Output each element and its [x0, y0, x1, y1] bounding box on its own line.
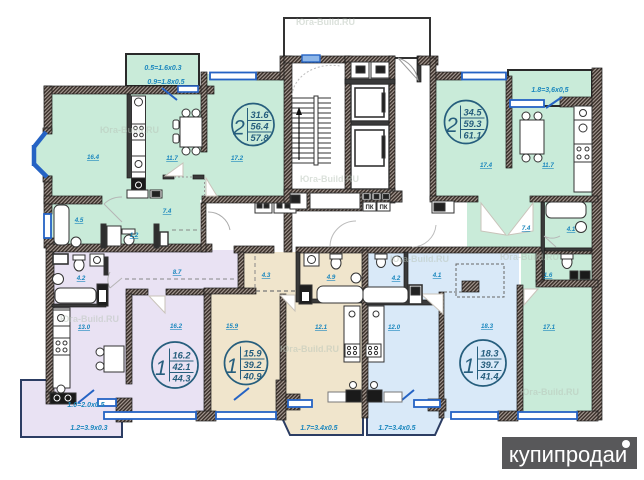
svg-text:Юга-Build.RU: Юга-Build.RU [100, 125, 159, 135]
svg-text:Юга-Build.RU: Юга-Build.RU [500, 252, 559, 262]
svg-text:44.3: 44.3 [171, 374, 191, 384]
svg-text:34.5: 34.5 [463, 108, 482, 118]
svg-text:Юга-Build.RU: Юга-Build.RU [390, 254, 449, 264]
svg-text:4.2: 4.2 [391, 275, 401, 282]
svg-text:40.9: 40.9 [242, 372, 262, 382]
svg-text:7.4: 7.4 [522, 225, 531, 232]
svg-text:купипродаи: купипродаи [509, 442, 627, 467]
svg-text:15.9: 15.9 [226, 323, 239, 330]
svg-text:57.8: 57.8 [250, 133, 269, 143]
svg-text:16.2: 16.2 [170, 323, 183, 330]
svg-text:59.3: 59.3 [463, 119, 482, 129]
svg-text:Юга-Build.RU: Юга-Build.RU [300, 174, 359, 184]
svg-text:15.9: 15.9 [243, 349, 262, 359]
svg-text:18.3: 18.3 [481, 323, 494, 330]
svg-text:42.1: 42.1 [171, 362, 190, 372]
svg-text:7.4: 7.4 [163, 208, 172, 215]
svg-text:18.3: 18.3 [480, 349, 499, 359]
svg-text:Юга-Build.RU: Юга-Build.RU [520, 387, 579, 397]
svg-text:11.7: 11.7 [166, 155, 178, 162]
svg-text:4.9: 4.9 [326, 274, 336, 281]
svg-text:0.9=1.8х0.5: 0.9=1.8х0.5 [147, 79, 184, 86]
svg-text:31.6: 31.6 [250, 110, 269, 120]
svg-text:11.7: 11.7 [542, 162, 554, 169]
svg-text:1.7=3.4х0.5: 1.7=3.4х0.5 [378, 425, 415, 432]
svg-text:1: 1 [226, 355, 238, 378]
svg-text:Юга-Build.RU: Юга-Build.RU [280, 344, 339, 354]
svg-text:56.4: 56.4 [250, 122, 269, 132]
svg-text:Юга-Build.RU: Юга-Build.RU [60, 314, 119, 324]
svg-text:1.0=2.0х0.5: 1.0=2.0х0.5 [67, 402, 104, 409]
svg-text:16.4: 16.4 [87, 154, 100, 161]
svg-text:4.1: 4.1 [566, 226, 576, 233]
svg-text:12.0: 12.0 [388, 324, 401, 331]
svg-text:17.4: 17.4 [480, 162, 493, 169]
svg-text:39.7: 39.7 [480, 360, 499, 370]
svg-text:4.3: 4.3 [261, 272, 271, 279]
svg-text:0.5=1.6х0.3: 0.5=1.6х0.3 [144, 65, 181, 72]
svg-text:1.7=3.4х0.5: 1.7=3.4х0.5 [300, 425, 337, 432]
svg-text:8.7: 8.7 [173, 269, 182, 276]
svg-text:61.1: 61.1 [463, 131, 481, 141]
svg-text:1.2: 1.2 [130, 232, 139, 239]
svg-text:1.8=3,6х0,5: 1.8=3,6х0,5 [531, 87, 568, 94]
svg-text:1.6: 1.6 [544, 272, 553, 279]
svg-text:1.2=3.9х0.3: 1.2=3.9х0.3 [70, 425, 107, 432]
svg-text:ПК: ПК [366, 205, 374, 211]
svg-text:1: 1 [463, 355, 475, 378]
svg-text:4.2: 4.2 [76, 275, 86, 282]
svg-text:4.5: 4.5 [74, 217, 84, 224]
svg-text:16.2: 16.2 [172, 351, 191, 361]
svg-text:12.1: 12.1 [315, 324, 328, 331]
svg-text:1: 1 [155, 357, 167, 380]
svg-text:4.1: 4.1 [432, 272, 442, 279]
svg-text:2: 2 [445, 114, 458, 137]
svg-text:13.0: 13.0 [78, 324, 91, 331]
svg-text:ПК: ПК [380, 205, 388, 211]
svg-text:17.1: 17.1 [543, 324, 556, 331]
svg-text:Юга-Build.RU: Юга-Build.RU [296, 17, 355, 27]
svg-text:39.2: 39.2 [243, 360, 262, 370]
svg-text:41.4: 41.4 [479, 372, 499, 382]
svg-text:2: 2 [232, 117, 245, 140]
svg-text:17.2: 17.2 [231, 155, 244, 162]
